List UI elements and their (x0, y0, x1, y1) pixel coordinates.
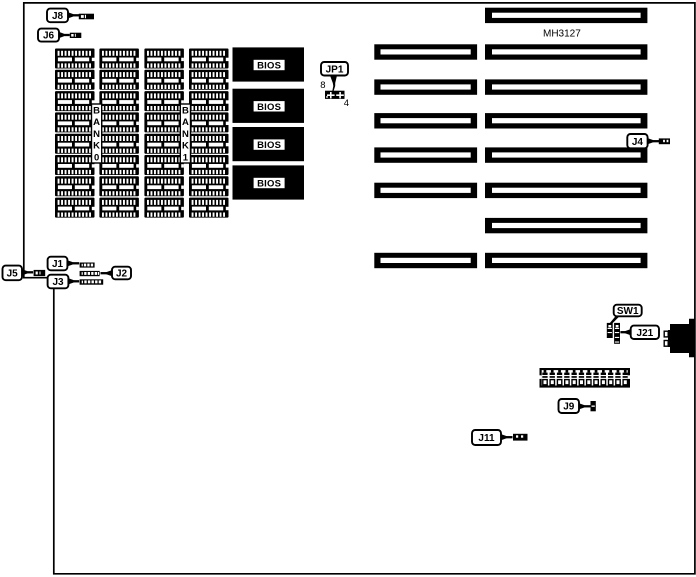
svg-text:K: K (93, 141, 100, 152)
svg-text:J1: J1 (52, 259, 64, 270)
svg-text:J4: J4 (632, 137, 644, 148)
svg-text:MH3127: MH3127 (543, 29, 581, 40)
svg-text:BIOS: BIOS (257, 61, 281, 72)
svg-text:J2: J2 (116, 269, 128, 280)
svg-text:N: N (182, 129, 189, 140)
svg-text:BIOS: BIOS (257, 179, 281, 190)
svg-text:JP1: JP1 (326, 64, 344, 75)
svg-text:0: 0 (94, 152, 99, 163)
svg-text:B: B (182, 106, 189, 117)
svg-text:J11: J11 (478, 433, 495, 444)
svg-text:J6: J6 (43, 31, 55, 42)
svg-text:BIOS: BIOS (257, 140, 281, 151)
svg-text:8: 8 (320, 80, 325, 91)
svg-text:A: A (93, 117, 100, 128)
svg-text:4: 4 (344, 98, 349, 109)
svg-text:J9: J9 (563, 402, 575, 413)
svg-text:J8: J8 (52, 11, 64, 22)
svg-text:J3: J3 (52, 277, 64, 288)
svg-text:J5: J5 (7, 269, 19, 280)
svg-text:B: B (93, 106, 100, 117)
svg-text:J21: J21 (637, 328, 654, 339)
svg-text:BIOS: BIOS (257, 102, 281, 113)
svg-text:SW1: SW1 (617, 306, 639, 317)
svg-text:K: K (182, 141, 189, 152)
svg-text:A: A (182, 117, 189, 128)
svg-text:1: 1 (183, 152, 189, 163)
svg-text:N: N (93, 129, 100, 140)
